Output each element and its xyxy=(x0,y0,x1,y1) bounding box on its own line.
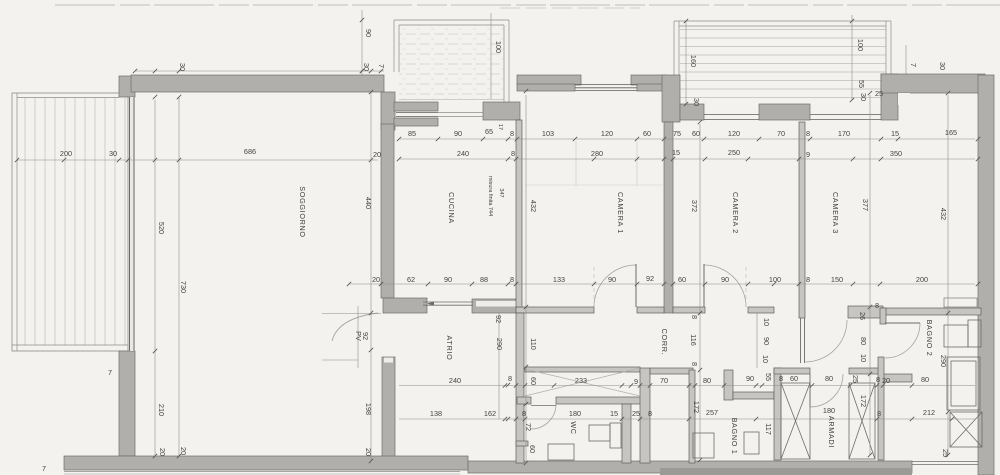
svg-text:CAMERA 3: CAMERA 3 xyxy=(831,192,840,234)
svg-text:686: 686 xyxy=(244,147,256,156)
svg-text:100: 100 xyxy=(494,41,503,53)
svg-text:117: 117 xyxy=(764,423,773,435)
svg-text:60: 60 xyxy=(528,445,537,453)
svg-text:8: 8 xyxy=(876,375,880,384)
svg-text:25: 25 xyxy=(632,409,640,418)
svg-text:290: 290 xyxy=(495,338,504,350)
svg-text:8: 8 xyxy=(510,275,514,284)
svg-text:120: 120 xyxy=(728,129,740,138)
svg-text:200: 200 xyxy=(60,149,72,158)
svg-text:60: 60 xyxy=(790,374,798,383)
svg-text:62: 62 xyxy=(407,275,415,284)
svg-text:30: 30 xyxy=(109,149,117,158)
svg-text:10: 10 xyxy=(859,354,868,362)
svg-text:15: 15 xyxy=(672,148,680,157)
svg-text:70: 70 xyxy=(777,129,785,138)
svg-text:20: 20 xyxy=(373,150,381,159)
svg-text:233: 233 xyxy=(575,376,587,385)
svg-text:730: 730 xyxy=(179,281,188,293)
svg-text:8: 8 xyxy=(875,301,879,310)
svg-text:240: 240 xyxy=(449,376,461,385)
svg-text:ATRIO: ATRIO xyxy=(445,336,454,361)
svg-text:80: 80 xyxy=(859,337,868,345)
svg-text:90: 90 xyxy=(454,129,462,138)
svg-text:9: 9 xyxy=(806,150,810,159)
svg-text:15: 15 xyxy=(891,129,899,138)
svg-text:180: 180 xyxy=(569,409,581,418)
svg-text:misura finita 744: misura finita 744 xyxy=(487,176,493,216)
svg-text:60: 60 xyxy=(678,275,686,284)
svg-text:240: 240 xyxy=(457,149,469,158)
svg-text:75: 75 xyxy=(673,129,681,138)
svg-text:90: 90 xyxy=(746,374,754,383)
svg-text:120: 120 xyxy=(601,129,613,138)
svg-text:180: 180 xyxy=(823,406,835,415)
svg-text:138: 138 xyxy=(430,409,442,418)
svg-text:372: 372 xyxy=(690,200,699,212)
svg-text:26: 26 xyxy=(858,312,867,320)
svg-text:520: 520 xyxy=(157,222,166,234)
svg-text:8: 8 xyxy=(511,149,515,158)
svg-text:30: 30 xyxy=(178,63,187,71)
svg-text:172: 172 xyxy=(692,401,701,413)
svg-text:150: 150 xyxy=(831,275,843,284)
svg-text:70: 70 xyxy=(660,376,668,385)
svg-text:170: 170 xyxy=(838,129,850,138)
svg-text:90: 90 xyxy=(364,29,373,37)
svg-text:200: 200 xyxy=(916,275,928,284)
svg-text:440: 440 xyxy=(364,197,373,209)
svg-text:133: 133 xyxy=(553,275,565,284)
svg-text:162: 162 xyxy=(484,409,496,418)
svg-text:BAGNO 1: BAGNO 1 xyxy=(730,418,739,455)
svg-text:CAMERA 2: CAMERA 2 xyxy=(731,192,740,234)
svg-text:80: 80 xyxy=(703,376,711,385)
svg-text:8: 8 xyxy=(508,374,512,383)
svg-text:72: 72 xyxy=(524,423,533,431)
svg-text:8: 8 xyxy=(690,362,699,366)
svg-text:20: 20 xyxy=(158,448,167,456)
svg-text:CUCINA: CUCINA xyxy=(447,192,456,224)
svg-text:80: 80 xyxy=(825,374,833,383)
svg-text:198: 198 xyxy=(364,403,373,415)
svg-text:432: 432 xyxy=(529,200,538,212)
svg-text:55: 55 xyxy=(857,80,866,88)
svg-text:BAGNO 2: BAGNO 2 xyxy=(925,320,934,357)
svg-text:92: 92 xyxy=(646,274,654,283)
svg-text:20: 20 xyxy=(372,275,380,284)
svg-text:30: 30 xyxy=(859,93,868,101)
svg-text:280: 280 xyxy=(591,149,603,158)
svg-text:432: 432 xyxy=(939,208,948,220)
svg-text:92: 92 xyxy=(494,315,503,323)
svg-text:30: 30 xyxy=(692,98,701,106)
svg-text:80: 80 xyxy=(921,375,929,384)
svg-text:15: 15 xyxy=(610,409,618,418)
svg-text:212: 212 xyxy=(923,408,935,417)
svg-text:WC: WC xyxy=(569,421,578,434)
svg-text:8: 8 xyxy=(510,129,514,138)
svg-text:25: 25 xyxy=(851,375,860,383)
svg-text:8: 8 xyxy=(806,129,810,138)
svg-text:8: 8 xyxy=(806,275,810,284)
svg-text:172: 172 xyxy=(859,395,868,407)
svg-text:20: 20 xyxy=(179,447,188,455)
svg-text:290: 290 xyxy=(939,355,948,367)
svg-text:8: 8 xyxy=(779,374,783,383)
svg-text:160: 160 xyxy=(689,55,698,67)
svg-text:60: 60 xyxy=(529,377,538,385)
svg-text:347: 347 xyxy=(498,188,504,197)
svg-text:10: 10 xyxy=(762,318,771,326)
svg-text:100: 100 xyxy=(856,39,865,51)
svg-text:377: 377 xyxy=(861,199,870,211)
svg-text:8: 8 xyxy=(690,315,699,319)
svg-text:103: 103 xyxy=(542,129,554,138)
svg-text:85: 85 xyxy=(408,129,416,138)
svg-text:25: 25 xyxy=(941,449,950,457)
svg-text:165: 165 xyxy=(945,128,957,137)
svg-text:90: 90 xyxy=(721,275,729,284)
svg-text:210: 210 xyxy=(157,404,166,416)
svg-text:30: 30 xyxy=(938,62,947,70)
svg-text:92: 92 xyxy=(361,332,370,340)
svg-text:257: 257 xyxy=(706,408,718,417)
svg-text:90: 90 xyxy=(444,275,452,284)
svg-text:88: 88 xyxy=(480,275,488,284)
svg-text:350: 350 xyxy=(890,149,902,158)
svg-text:55: 55 xyxy=(764,373,773,381)
svg-text:17: 17 xyxy=(497,124,503,130)
svg-text:CORR.: CORR. xyxy=(660,329,669,356)
svg-text:116: 116 xyxy=(689,334,698,346)
svg-text:CAMERA 1: CAMERA 1 xyxy=(616,192,625,234)
svg-text:ARMADI: ARMADI xyxy=(827,416,836,448)
svg-text:8: 8 xyxy=(522,409,526,418)
svg-text:7: 7 xyxy=(108,368,112,377)
svg-text:7: 7 xyxy=(42,464,46,473)
svg-text:10: 10 xyxy=(761,355,770,363)
svg-text:20: 20 xyxy=(882,376,890,385)
svg-text:65: 65 xyxy=(485,127,493,136)
svg-text:7: 7 xyxy=(909,63,918,67)
svg-text:250: 250 xyxy=(728,148,740,157)
svg-text:110: 110 xyxy=(529,338,538,350)
svg-text:25: 25 xyxy=(875,89,883,98)
svg-text:60: 60 xyxy=(643,129,651,138)
svg-text:90: 90 xyxy=(762,337,771,345)
svg-text:7: 7 xyxy=(377,64,386,68)
svg-text:9: 9 xyxy=(634,377,638,386)
svg-text:90: 90 xyxy=(608,275,616,284)
svg-text:SOGGIORNO: SOGGIORNO xyxy=(298,186,307,237)
svg-text:20: 20 xyxy=(364,448,373,456)
svg-text:8: 8 xyxy=(648,409,652,418)
svg-text:60: 60 xyxy=(692,129,700,138)
